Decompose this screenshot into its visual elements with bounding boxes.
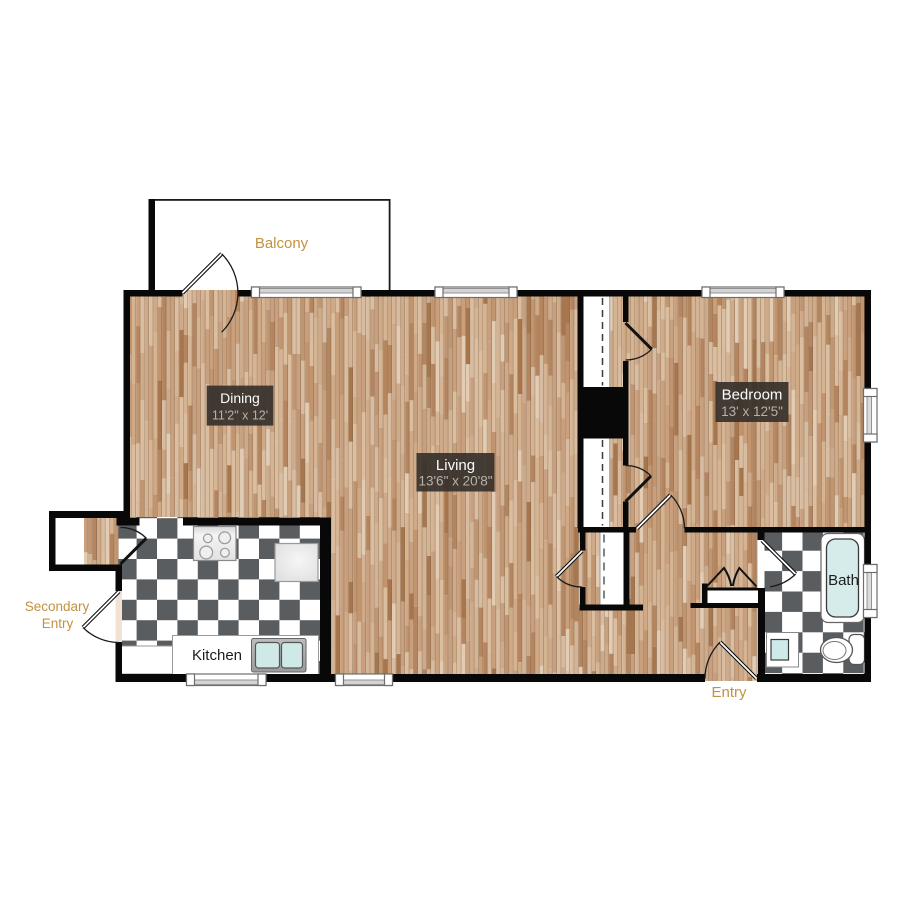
svg-text:Living: Living bbox=[436, 457, 475, 474]
svg-text:13' x 12'5": 13' x 12'5" bbox=[721, 404, 783, 419]
svg-text:Kitchen: Kitchen bbox=[192, 647, 242, 664]
svg-text:Bath: Bath bbox=[828, 572, 859, 589]
svg-text:Dining: Dining bbox=[220, 390, 260, 406]
svg-text:Balcony: Balcony bbox=[255, 235, 309, 252]
svg-text:11'2" x 12': 11'2" x 12' bbox=[212, 409, 268, 423]
svg-text:Secondary: Secondary bbox=[25, 599, 90, 614]
svg-text:Bedroom: Bedroom bbox=[722, 387, 783, 404]
svg-text:Entry: Entry bbox=[711, 684, 747, 701]
svg-text:13'6" x 20'8": 13'6" x 20'8" bbox=[418, 474, 492, 489]
svg-text:Entry: Entry bbox=[42, 616, 74, 631]
